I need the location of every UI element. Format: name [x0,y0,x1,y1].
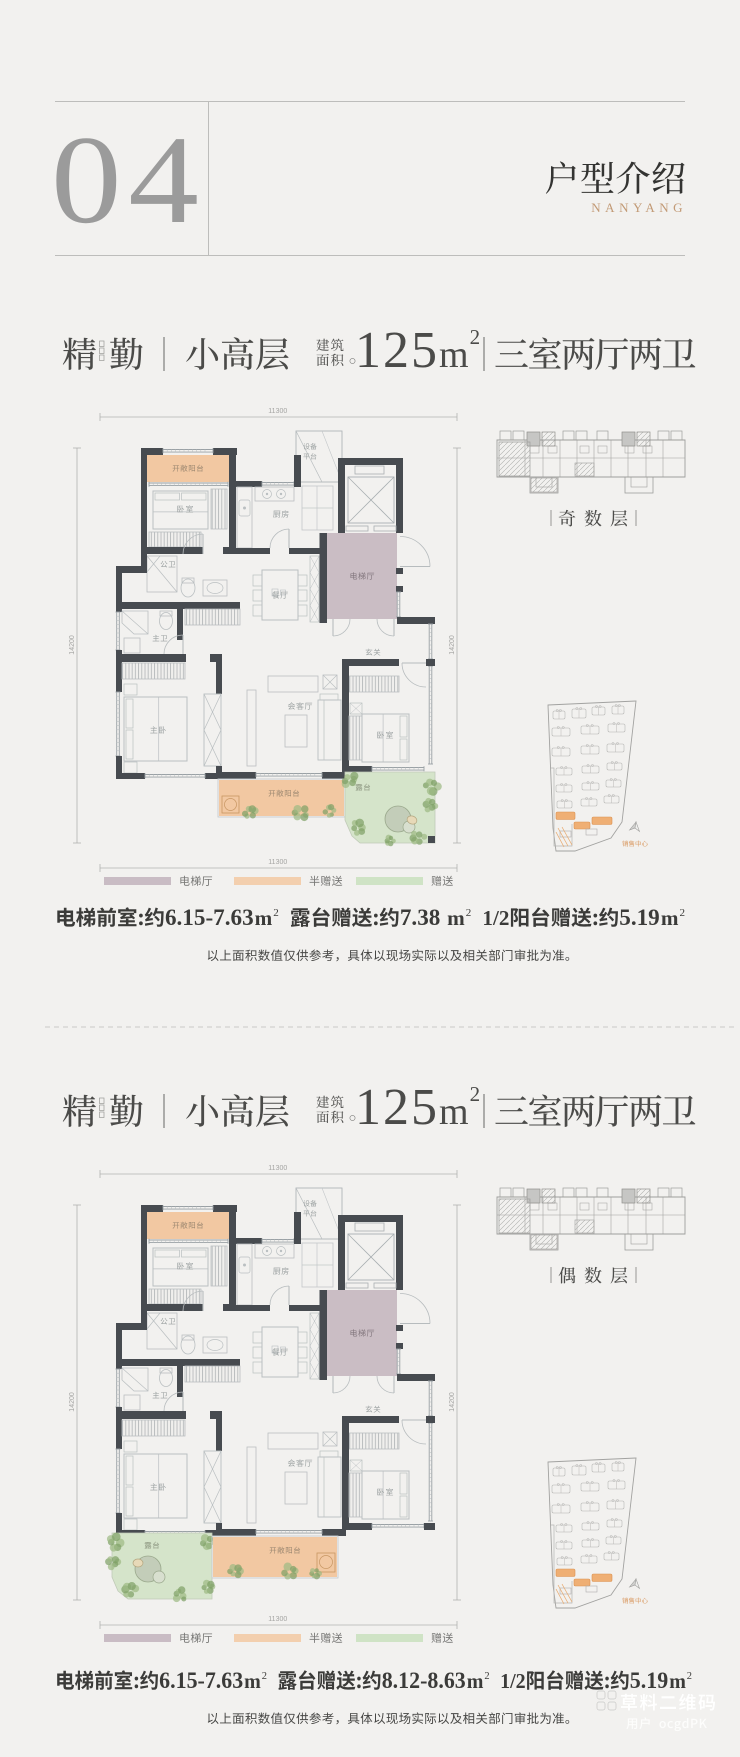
svg-text:14200: 14200 [449,1392,456,1412]
svg-text:11300: 11300 [268,1165,287,1172]
svg-text:11300: 11300 [268,408,287,415]
svg-text:m: m [255,906,273,930]
svg-text:14200: 14200 [69,1392,76,1412]
svg-text:11300: 11300 [268,1616,287,1623]
svg-text:04: 04 [51,110,206,249]
svg-text:7.38: 7.38 [400,904,440,930]
svg-text:2: 2 [679,907,685,919]
svg-text:2: 2 [484,1670,489,1682]
svg-text:2: 2 [262,1670,267,1682]
svg-text:1/2: 1/2 [500,1671,526,1694]
svg-text:125: 125 [355,1079,439,1136]
svg-text:2: 2 [687,1670,692,1682]
svg-text:m: m [439,1091,469,1133]
svg-text:m: m [467,1671,484,1694]
svg-text:1/2: 1/2 [482,906,509,930]
svg-text:8.12-8.63: 8.12-8.63 [382,1668,466,1694]
svg-text:6.15-7.63: 6.15-7.63 [165,904,254,930]
svg-text:m: m [439,334,469,376]
svg-text:m: m [669,1671,686,1694]
svg-text:2: 2 [466,907,472,919]
svg-text:NANYANG: NANYANG [591,200,687,215]
svg-text:2: 2 [470,1082,481,1106]
svg-text:125: 125 [355,322,439,379]
svg-text:5.19: 5.19 [619,904,659,930]
svg-text:2: 2 [470,325,481,349]
svg-text:2: 2 [273,907,279,919]
svg-text:5.19: 5.19 [630,1668,668,1694]
svg-text:14200: 14200 [449,635,456,655]
svg-text:6.15-7.63: 6.15-7.63 [159,1668,243,1694]
svg-text:m: m [244,1671,261,1694]
svg-text:14200: 14200 [69,635,76,655]
svg-text:m: m [447,906,465,930]
svg-text:11300: 11300 [268,859,287,866]
svg-text:m: m [661,906,679,930]
